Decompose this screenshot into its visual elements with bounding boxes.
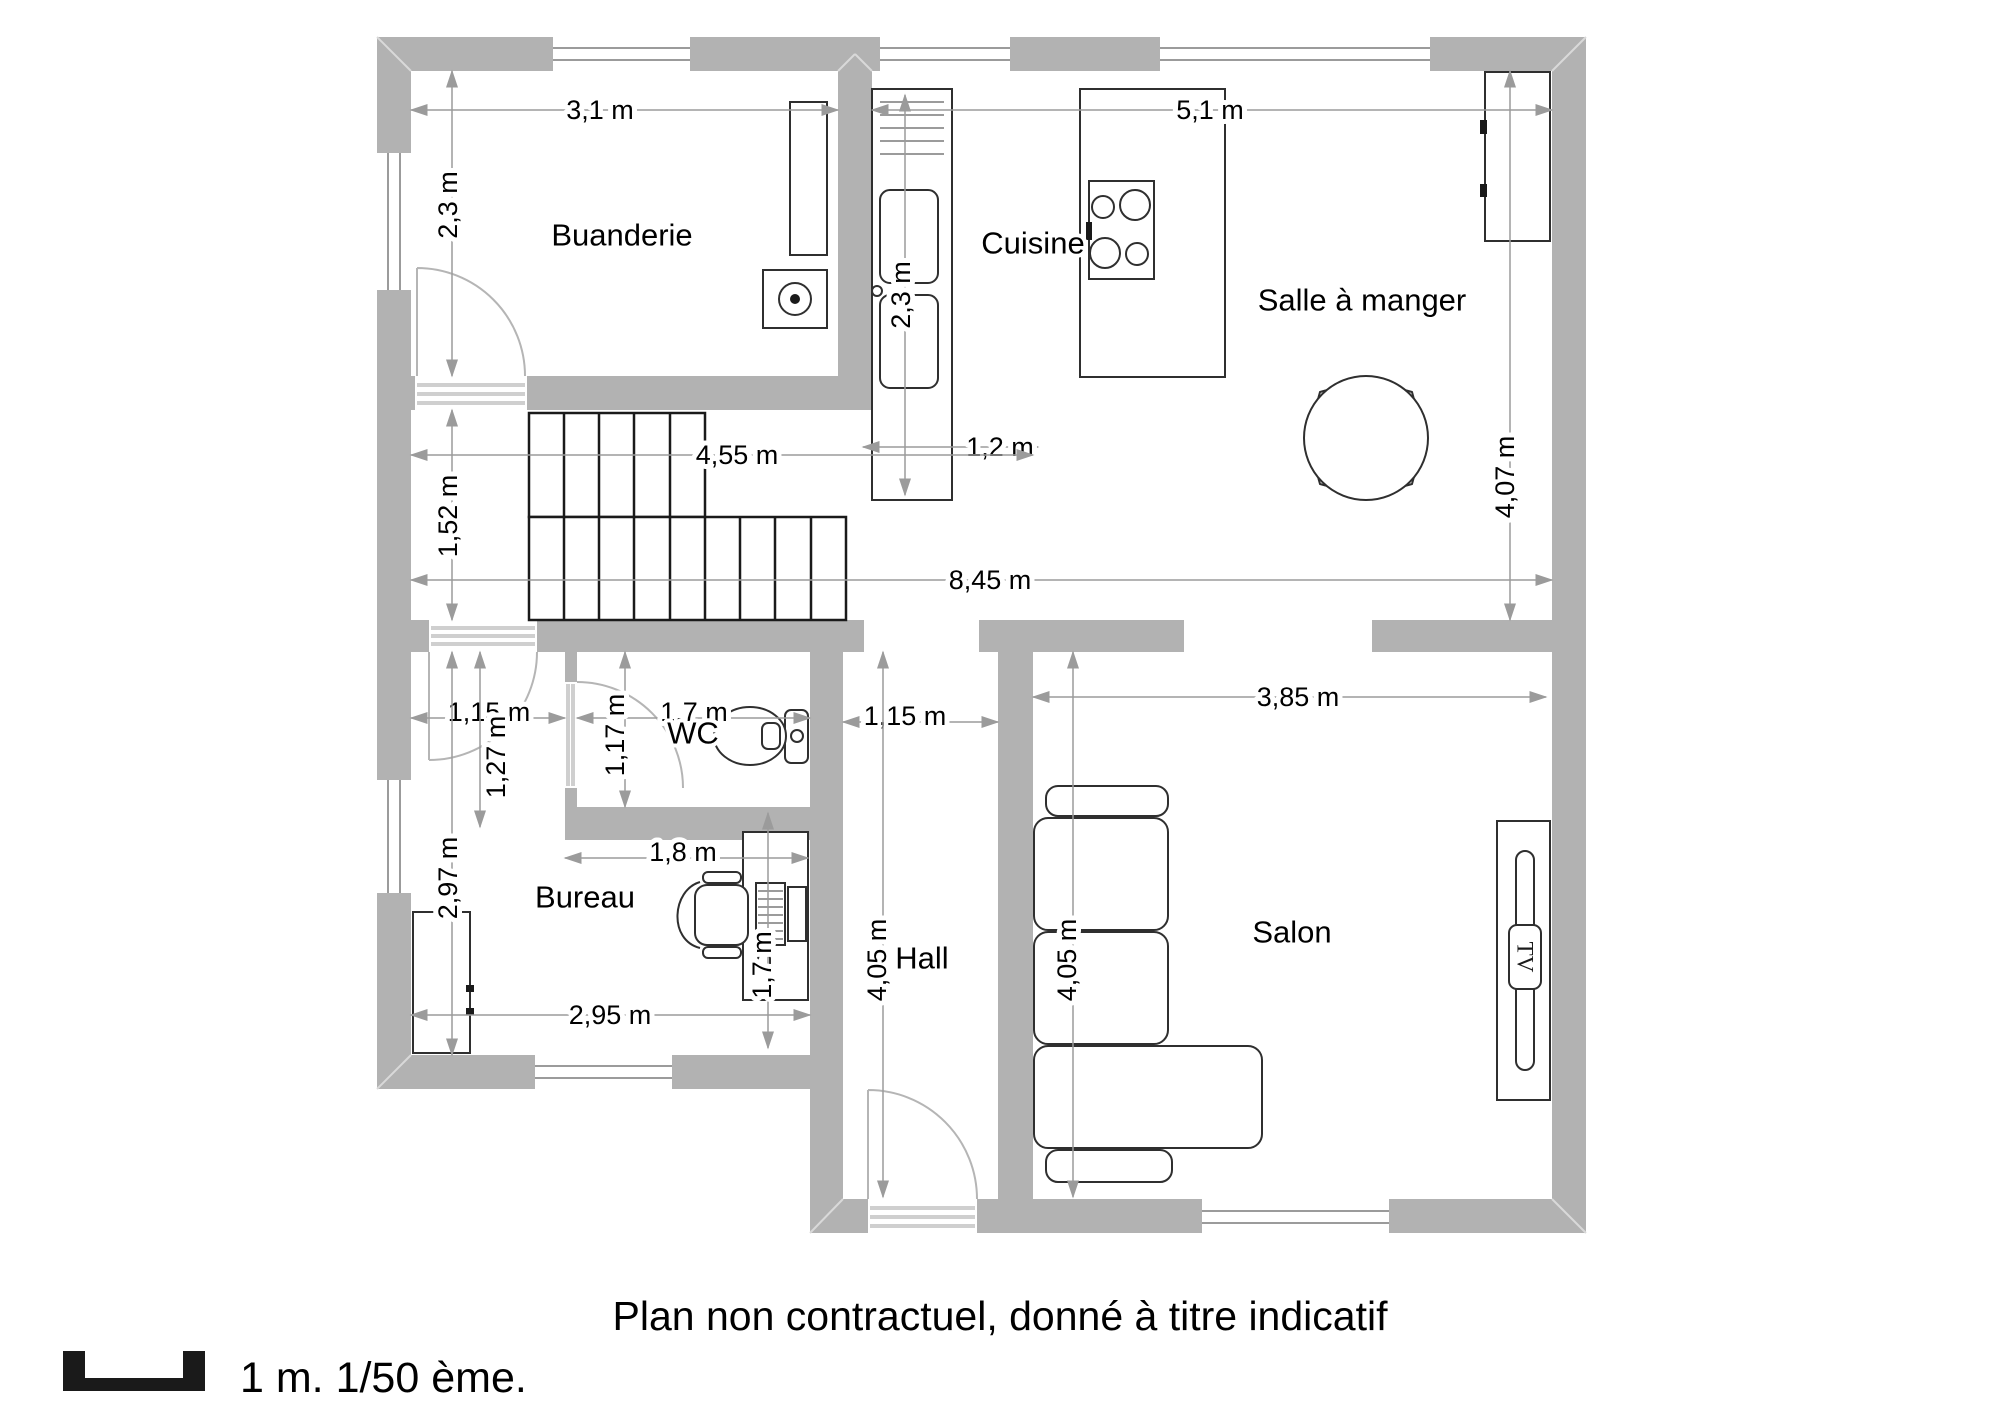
label-cuisine: Cuisine	[981, 226, 1084, 261]
svg-text:4,05 m: 4,05 m	[862, 919, 892, 1002]
window-salon-bottom	[1202, 1199, 1389, 1233]
scale-bar: 1 m. 1/50 ème.	[63, 1351, 527, 1402]
svg-text:5,1 m: 5,1 m	[1176, 95, 1244, 125]
svg-text:4,07 m: 4,07 m	[1490, 436, 1520, 519]
wall-middle	[411, 620, 1586, 652]
label-wc: WC	[667, 716, 719, 751]
floor-plan-svg: TV 3,1 m 5,1 m 2,3 m 2,3 m 1,2	[0, 0, 2000, 1415]
room-cuisine	[872, 71, 1225, 620]
svg-text:8,45 m: 8,45 m	[949, 565, 1032, 595]
svg-text:2,3 m: 2,3 m	[433, 171, 463, 239]
svg-text:1,7 m: 1,7 m	[747, 931, 777, 999]
svg-text:1,2 m: 1,2 m	[966, 432, 1034, 462]
svg-text:2,97 m: 2,97 m	[433, 837, 463, 920]
opening-dining-salon	[1184, 620, 1372, 652]
window-left-buanderie	[377, 153, 411, 290]
svg-text:1,27 m: 1,27 m	[481, 716, 511, 799]
label-buanderie: Buanderie	[551, 218, 692, 253]
plan-caption: Plan non contractuel, donné à titre indi…	[613, 1293, 1389, 1339]
label-bureau: Bureau	[535, 880, 635, 915]
window-left-bureau	[377, 780, 411, 893]
svg-text:2,95 m: 2,95 m	[569, 1000, 652, 1030]
label-salle-a-manger: Salle à manger	[1258, 283, 1467, 318]
svg-text:4,55 m: 4,55 m	[696, 440, 779, 470]
svg-text:2,3 m: 2,3 m	[886, 261, 916, 329]
staircase	[529, 413, 846, 620]
svg-text:1,8 m: 1,8 m	[649, 837, 717, 867]
window-top-cuisine	[880, 37, 1010, 71]
stair-lower-flight	[529, 517, 846, 620]
wall-hall-right	[998, 652, 1033, 1199]
window-top-buanderie	[553, 37, 690, 71]
svg-text:3,85 m: 3,85 m	[1257, 682, 1340, 712]
room-salle-a-manger	[1225, 71, 1552, 620]
label-hall: Hall	[895, 941, 948, 976]
dim-stair-strip-depth: 1,52 m	[433, 410, 463, 620]
label-salon: Salon	[1252, 915, 1331, 950]
stair-upper-flight	[529, 413, 705, 517]
svg-text:3,1 m: 3,1 m	[566, 95, 634, 125]
svg-text:1,17 m: 1,17 m	[600, 694, 630, 777]
scale-label: 1 m. 1/50 ème.	[240, 1354, 527, 1402]
wall-hall-left	[810, 652, 843, 1233]
floor-plan: TV 3,1 m 5,1 m 2,3 m 2,3 m 1,2	[0, 0, 2000, 1415]
svg-text:4,05 m: 4,05 m	[1052, 919, 1082, 1002]
opening-hall-top	[864, 620, 979, 652]
svg-text:1,15 m: 1,15 m	[864, 701, 947, 731]
svg-text:1,52 m: 1,52 m	[433, 475, 463, 558]
window-top-dining	[1160, 37, 1430, 71]
window-bureau-bottom	[535, 1055, 672, 1089]
wall-buanderie-cuisine	[838, 71, 872, 410]
